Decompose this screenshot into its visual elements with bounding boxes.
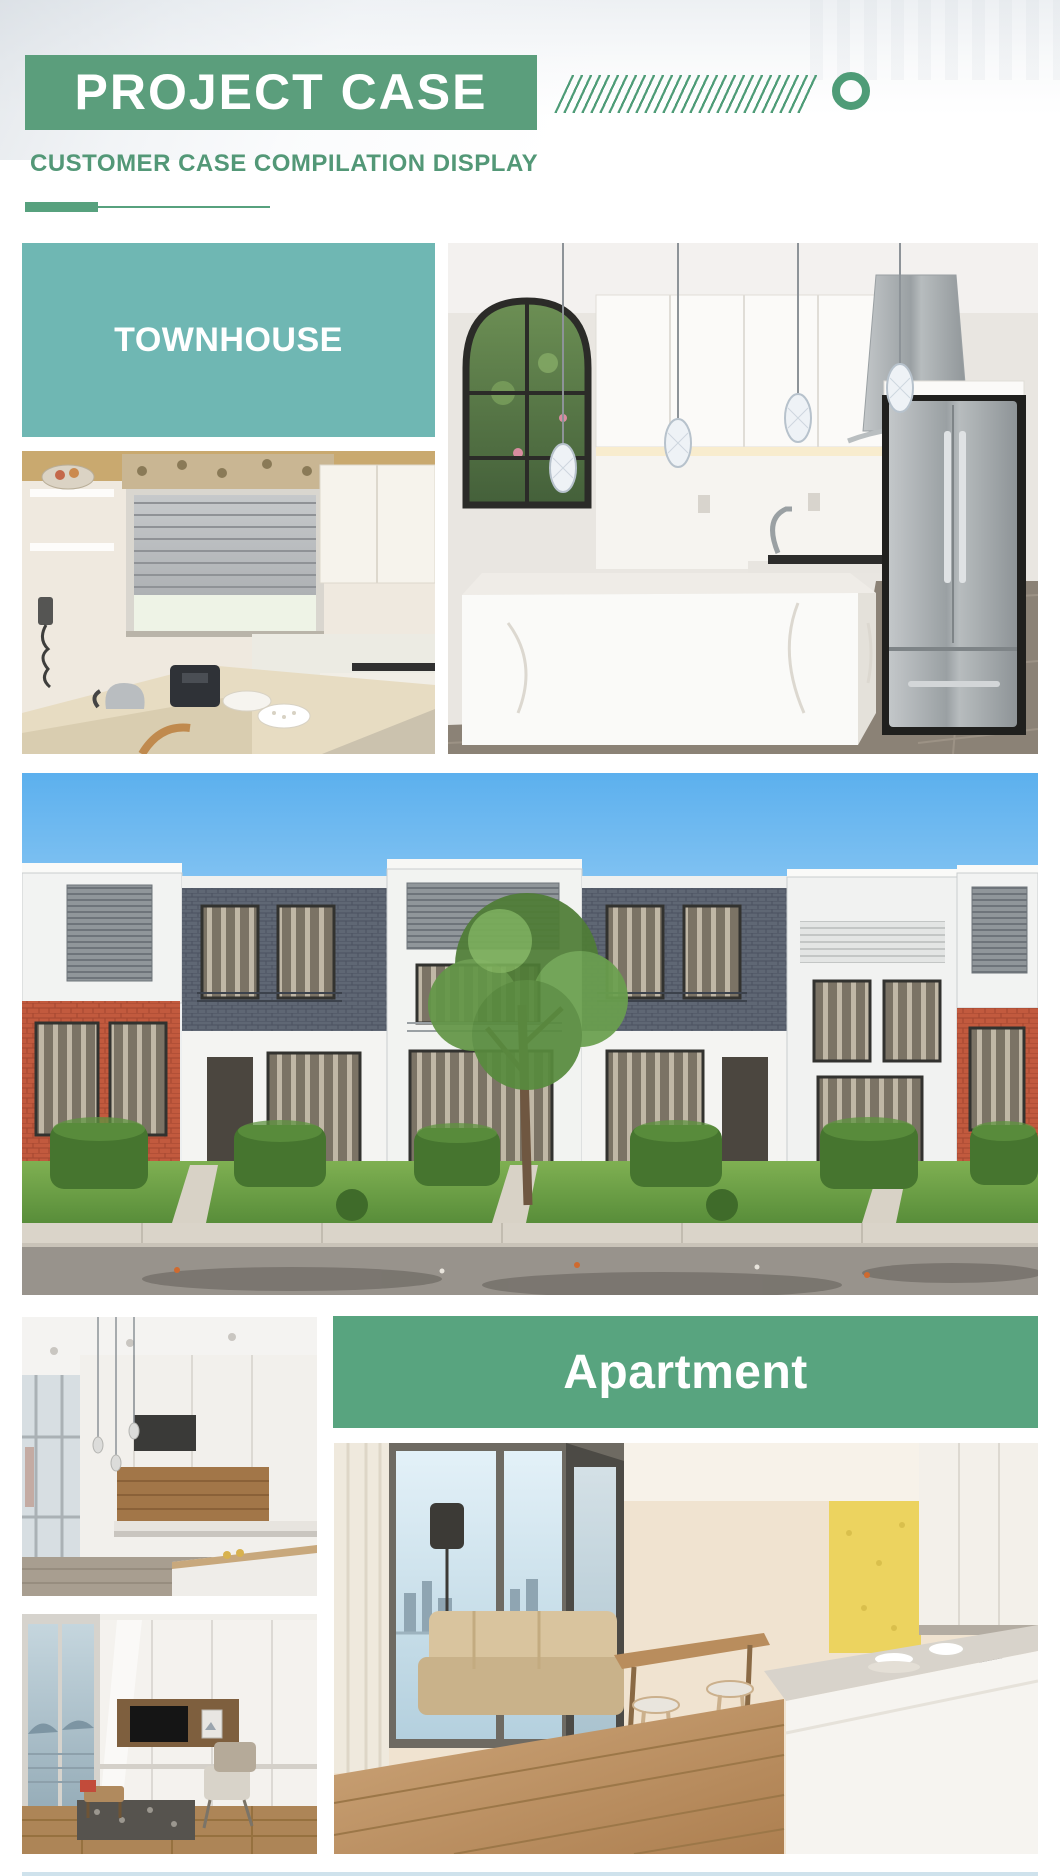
apartment-label: Apartment [563,1345,808,1400]
circle-outline-icon [832,72,870,110]
page-title: PROJECT CASE [75,55,488,130]
townhouse-kitchen-photo-right [448,243,1038,754]
apartment-living-kitchen-photo-large [334,1443,1038,1854]
apartment-living-photo-small [22,1614,317,1854]
townhouse-label: TOWNHOUSE [114,321,343,360]
page: PROJECT CASE CUSTOMER CASE COMPILATION D… [0,0,1060,1876]
townhouse-kitchen-photo-left [22,451,435,754]
diagonal-hatch-icon [554,75,822,113]
title-banner: PROJECT CASE [25,55,537,130]
underline-rule-thick [25,202,98,212]
apartment-kitchen-photo-small [22,1317,317,1596]
townhouse-label-box: TOWNHOUSE [22,243,435,437]
header-stripe-decor [810,0,1060,80]
next-section-strip [22,1872,1038,1876]
underline-rule-thin [98,206,270,208]
townhouse-exterior-photo [22,773,1038,1295]
apartment-label-box: Apartment [333,1316,1038,1428]
page-subtitle: CUSTOMER CASE COMPILATION DISPLAY [30,150,538,178]
